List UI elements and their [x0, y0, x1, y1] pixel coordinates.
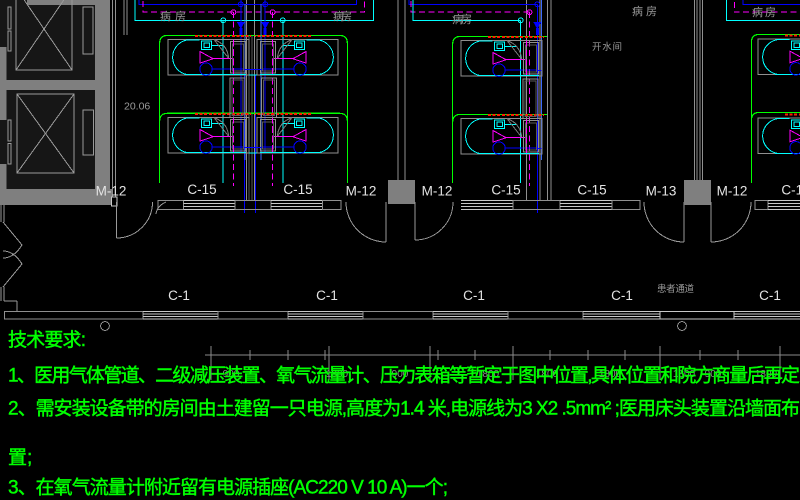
- svg-text:2、需安装设备带的房间由土建留一只电源,高度为1.4 米,电: 2、需安装设备带的房间由土建留一只电源,高度为1.4 米,电源线为3 X2 .5…: [8, 398, 800, 420]
- svg-text:病房: 病房: [333, 9, 352, 23]
- svg-text:M-12: M-12: [96, 184, 127, 199]
- svg-text:M-12: M-12: [717, 184, 748, 199]
- svg-text:C-15: C-15: [187, 182, 216, 197]
- svg-text:技术要求:: 技术要求:: [8, 329, 86, 351]
- svg-text:M-13: M-13: [646, 184, 677, 199]
- svg-text:C-15: C-15: [283, 182, 312, 197]
- svg-text:患者通道: 患者通道: [657, 283, 694, 295]
- svg-text:C-1: C-1: [316, 288, 338, 303]
- svg-text:M-12: M-12: [346, 184, 377, 199]
- svg-text:C-15: C-15: [491, 183, 520, 198]
- svg-text:置;: 置;: [8, 448, 32, 469]
- svg-text:20.06: 20.06: [124, 101, 150, 113]
- svg-text:C-1: C-1: [463, 288, 485, 303]
- svg-text:C-1: C-1: [168, 288, 190, 303]
- svg-text:C-15: C-15: [781, 183, 800, 198]
- svg-text:C-1: C-1: [759, 288, 781, 303]
- svg-text:1、医用气体管道、二级减压装置、氧气流量计、压力表箱等暂定于: 1、医用气体管道、二级减压装置、氧气流量计、压力表箱等暂定于图中位置,具体位置和…: [8, 365, 800, 387]
- svg-text:C-1: C-1: [611, 288, 633, 303]
- svg-text:病房: 病房: [452, 12, 472, 26]
- svg-text:开水间: 开水间: [592, 41, 622, 53]
- svg-text:M-12: M-12: [422, 184, 453, 199]
- svg-text:C-15: C-15: [577, 183, 606, 198]
- svg-text:3、在氧气流量计附近留有电源插座(AC220 V 10 A): 3、在氧气流量计附近留有电源插座(AC220 V 10 A)一个;: [8, 477, 448, 499]
